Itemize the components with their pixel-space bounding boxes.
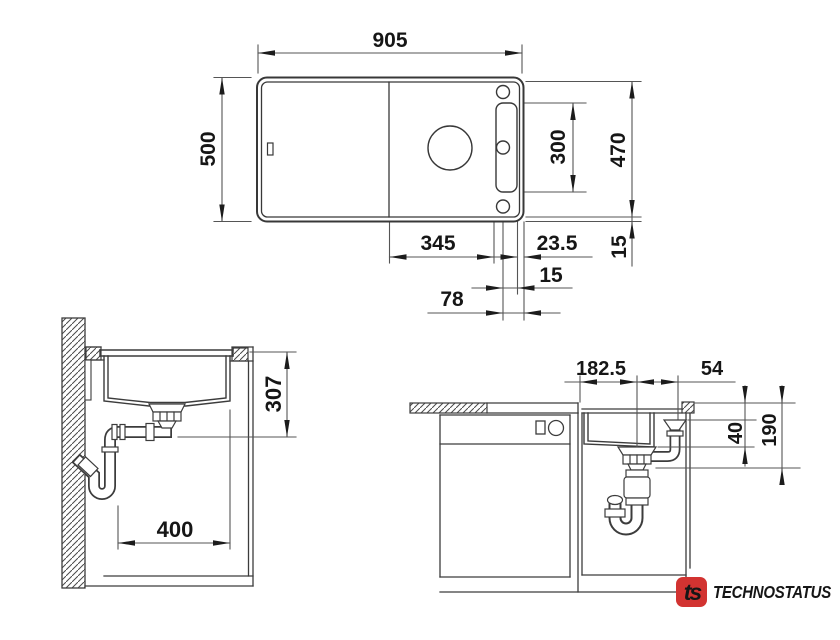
overflow-pipe xyxy=(650,420,686,457)
countertop-right xyxy=(232,348,248,361)
dim-182-5-label: 182.5 xyxy=(576,358,626,380)
countertop-left xyxy=(86,347,101,360)
wall-section xyxy=(62,318,85,588)
dim-905-label: 905 xyxy=(372,29,407,52)
drain-trap-assembly-front xyxy=(605,447,656,529)
countertop-section-left xyxy=(410,403,487,413)
overflow-slot xyxy=(268,143,274,155)
side-section-view: 307 400 xyxy=(62,318,296,588)
dim-307-label: 307 xyxy=(261,376,286,413)
appliance-front xyxy=(440,415,570,577)
bowl-section xyxy=(100,350,233,406)
appliance-button xyxy=(536,421,545,434)
dim-500-label: 500 xyxy=(197,131,220,166)
dim-54-label: 54 xyxy=(701,358,724,380)
sink-cabinet xyxy=(440,413,690,592)
dim-345-label: 345 xyxy=(420,232,455,255)
logo-monogram: ts xyxy=(684,579,702,605)
brand-logo: ts TECHNOSTATUS xyxy=(676,577,832,607)
appliance-knob xyxy=(549,421,564,436)
countertop-section-right xyxy=(682,402,694,413)
dim-400-label: 400 xyxy=(157,517,194,542)
dim-190-label: 190 xyxy=(759,413,781,446)
drain-trap-assembly xyxy=(78,404,185,494)
sink-rim-inner-edge xyxy=(262,82,520,217)
sink-dimension-drawing: 905 500 470 300 15 345 23.5 15 78 xyxy=(0,0,840,640)
technical-drawing-page: 905 500 470 300 15 345 23.5 15 78 xyxy=(0,0,840,640)
drain-hole xyxy=(428,126,472,170)
dim-15-gap-label: 15 xyxy=(539,264,563,287)
top-view: 905 500 470 300 15 345 23.5 15 78 xyxy=(197,29,641,320)
tap-hole-bottom xyxy=(497,200,510,213)
logo-brand-text: TECHNOSTATUS xyxy=(713,582,832,602)
tap-hole-top xyxy=(497,86,510,99)
bowl-section-front xyxy=(584,413,654,447)
dim-470-label: 470 xyxy=(607,132,630,167)
dim-78-label: 78 xyxy=(440,288,464,311)
front-section-view: 182.5 54 40 190 xyxy=(410,358,800,592)
dim-23-5-label: 23.5 xyxy=(537,232,578,255)
dim-300-label: 300 xyxy=(547,129,570,164)
dim-15-rim-label: 15 xyxy=(608,235,631,259)
dim-40-label: 40 xyxy=(725,422,747,444)
tap-hole-middle xyxy=(497,141,510,154)
